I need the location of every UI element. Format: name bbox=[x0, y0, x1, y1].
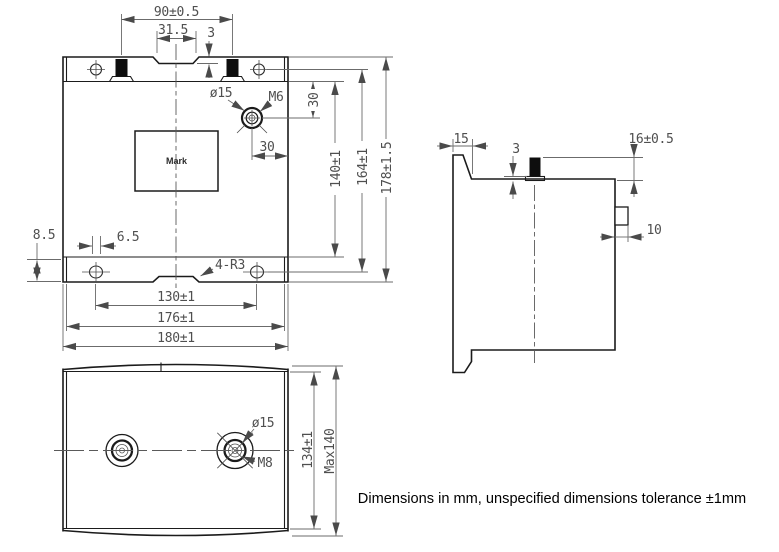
dim-text: 31.5 bbox=[158, 23, 188, 38]
dim-text: M8 bbox=[257, 456, 272, 471]
dim-text: 3 bbox=[512, 142, 520, 157]
terminal-post-right bbox=[227, 59, 239, 77]
dim-text: 6.5 bbox=[117, 230, 140, 245]
dim-text: 176±1 bbox=[157, 311, 195, 326]
drawing-canvas: Mark 90±0.5 31.5 3 ø15 M6 bbox=[0, 0, 779, 552]
footer-note: Dimensions in mm, unspecified dimensions… bbox=[358, 491, 746, 507]
dim-text: 10 bbox=[646, 223, 661, 238]
background bbox=[0, 0, 779, 552]
dim-text: 180±1 bbox=[157, 331, 195, 346]
dim-text: 178±1.5 bbox=[380, 142, 395, 195]
dim-text: M6 bbox=[268, 90, 283, 105]
dim-text: ø15 bbox=[210, 86, 233, 101]
dim-text: 3 bbox=[207, 26, 215, 41]
side-terminal-post bbox=[530, 158, 541, 177]
dim-text: 130±1 bbox=[157, 290, 195, 305]
dim-text: 8.5 bbox=[33, 228, 56, 243]
dim-text: 15 bbox=[453, 132, 468, 147]
dim-text: 134±1 bbox=[301, 431, 316, 469]
terminal-post-left bbox=[116, 59, 128, 77]
dim-text: Max140 bbox=[323, 428, 338, 473]
dim-text: 4-R3 bbox=[215, 258, 245, 273]
dim-text: 30 bbox=[307, 92, 322, 107]
dim-text: ø15 bbox=[252, 416, 275, 431]
dim-text: 16±0.5 bbox=[628, 132, 673, 147]
dim-text: 164±1 bbox=[356, 148, 371, 186]
mark-label: Mark bbox=[166, 156, 188, 166]
dim-text: 140±1 bbox=[329, 150, 344, 188]
side-boss bbox=[615, 207, 628, 225]
dim-text: 30 bbox=[259, 140, 274, 155]
technical-drawing-svg: Mark 90±0.5 31.5 3 ø15 M6 bbox=[0, 0, 779, 552]
dim-text: 90±0.5 bbox=[154, 5, 199, 20]
